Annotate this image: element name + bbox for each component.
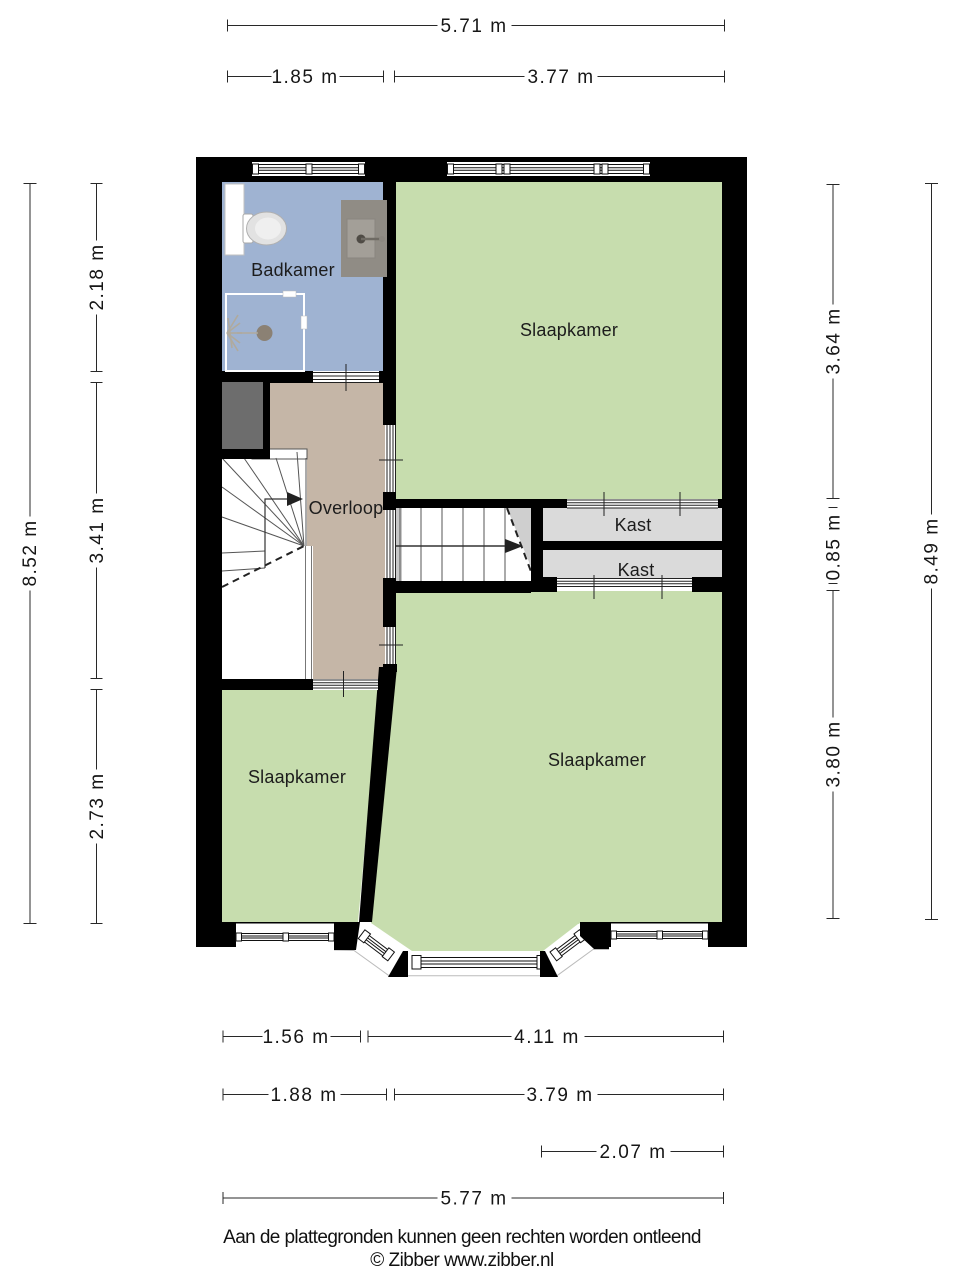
svg-text:1.85 m: 1.85 m (271, 67, 338, 88)
svg-text:Badkamer: Badkamer (251, 260, 335, 280)
svg-text:5.71 m: 5.71 m (440, 16, 507, 37)
svg-text:8.52 m: 8.52 m (20, 519, 41, 586)
svg-text:8.49 m: 8.49 m (922, 517, 943, 584)
svg-text:Kast: Kast (618, 560, 655, 580)
svg-text:3.41 m: 3.41 m (87, 496, 108, 563)
svg-text:2.18 m: 2.18 m (87, 243, 108, 310)
svg-text:5.77 m: 5.77 m (440, 1189, 507, 1210)
svg-text:Kast: Kast (615, 515, 652, 535)
svg-text:Slaapkamer: Slaapkamer (520, 320, 618, 340)
svg-text:3.80 m: 3.80 m (824, 720, 845, 787)
svg-text:0.85 m: 0.85 m (824, 513, 845, 580)
svg-text:3.64 m: 3.64 m (824, 307, 845, 374)
svg-text:1.88 m: 1.88 m (270, 1085, 337, 1106)
svg-text:2.07 m: 2.07 m (599, 1142, 666, 1163)
svg-text:Overloop: Overloop (309, 498, 384, 518)
svg-text:© Zibber www.zibber.nl: © Zibber www.zibber.nl (370, 1250, 554, 1271)
svg-text:3.79 m: 3.79 m (526, 1085, 593, 1106)
svg-text:1.56 m: 1.56 m (262, 1027, 329, 1048)
svg-text:2.73 m: 2.73 m (87, 772, 108, 839)
svg-text:Slaapkamer: Slaapkamer (248, 767, 346, 787)
svg-text:Aan de plattegronden kunnen ge: Aan de plattegronden kunnen geen rechten… (223, 1227, 701, 1248)
svg-text:4.11 m: 4.11 m (514, 1027, 580, 1048)
svg-text:Slaapkamer: Slaapkamer (548, 750, 646, 770)
svg-text:3.77 m: 3.77 m (527, 67, 594, 88)
